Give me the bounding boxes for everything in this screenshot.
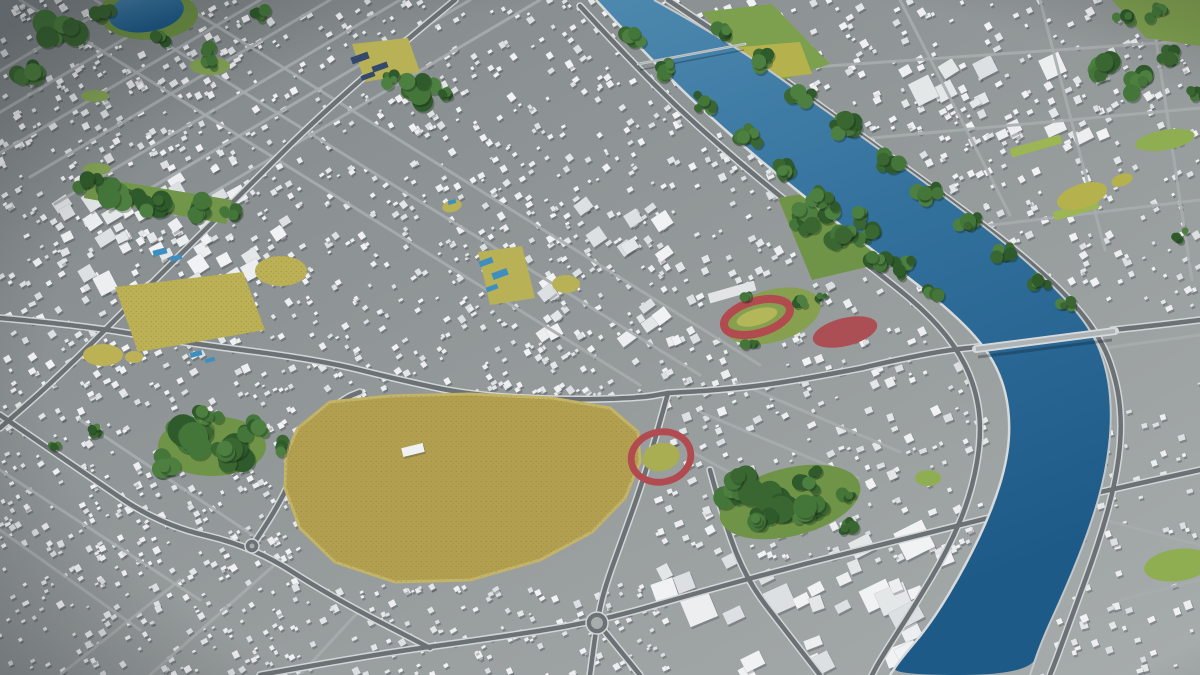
small-field-1: [83, 344, 123, 366]
riverbank-green-small: [915, 470, 941, 486]
small-park-2: [81, 90, 109, 102]
city-3d-model-render: [0, 0, 1200, 675]
scene-canvas: [0, 0, 1200, 675]
small-field-2: [125, 351, 143, 363]
round-yard: [552, 275, 580, 293]
